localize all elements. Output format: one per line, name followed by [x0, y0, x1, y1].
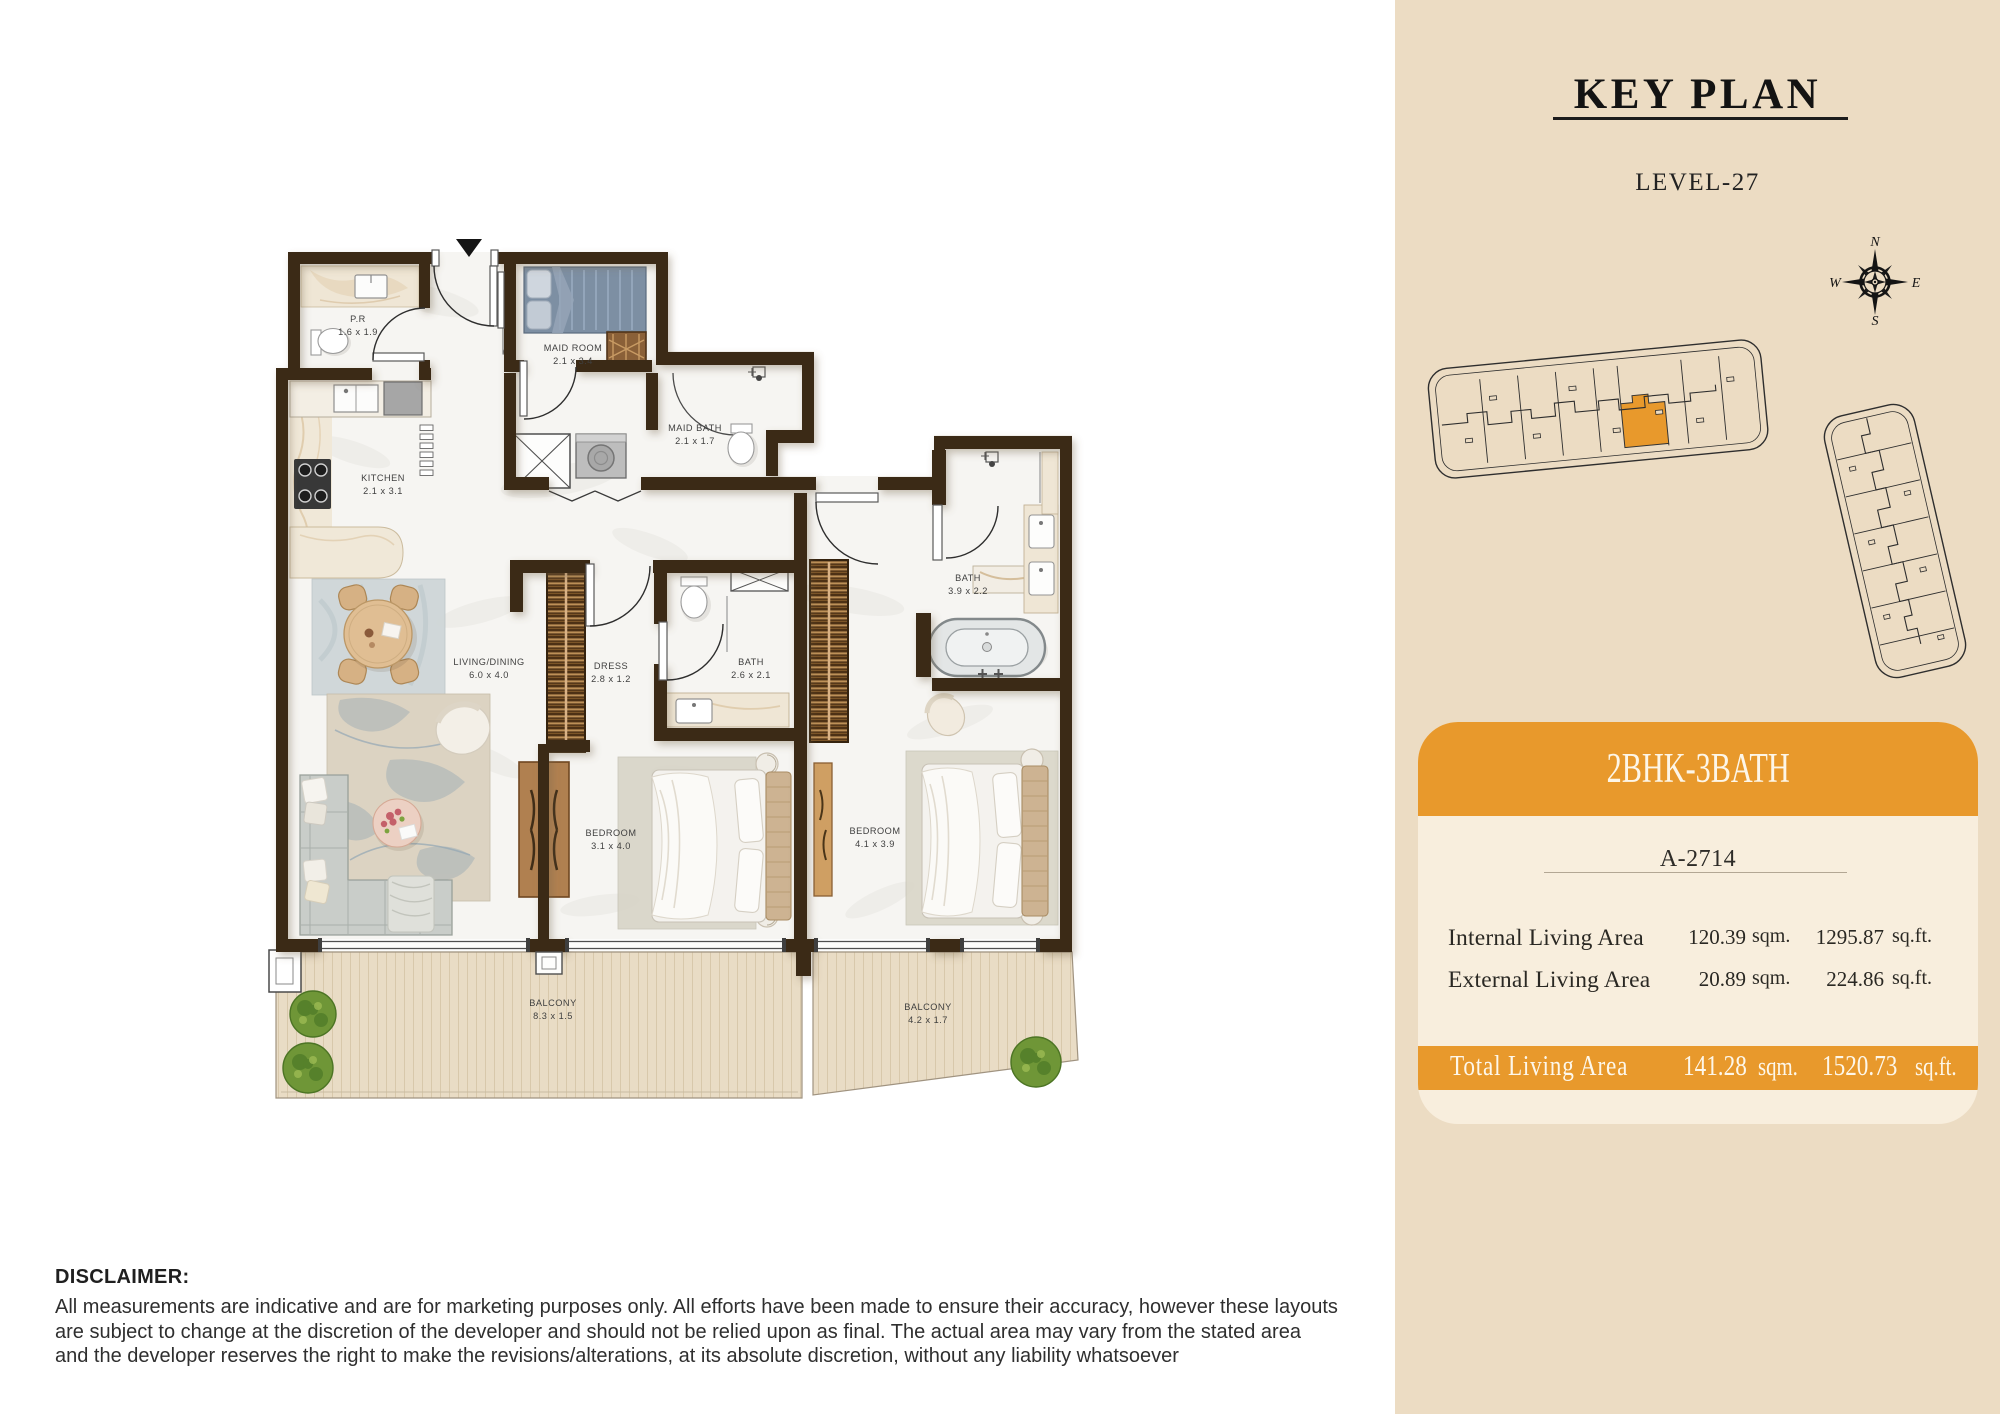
svg-text:2.1 x 1.7: 2.1 x 1.7 [675, 436, 715, 446]
svg-text:2.1 x 3.1: 2.1 x 3.1 [363, 486, 403, 496]
svg-text:BATH: BATH [955, 573, 981, 583]
svg-text:LIVING/DINING: LIVING/DINING [453, 657, 524, 667]
svg-text:3.1 x 4.0: 3.1 x 4.0 [591, 841, 631, 851]
svg-text:MAID ROOM: MAID ROOM [544, 343, 603, 353]
svg-text:BEDROOM: BEDROOM [586, 828, 637, 838]
svg-text:S: S [1872, 314, 1879, 327]
svg-text:2.8 x 1.2: 2.8 x 1.2 [591, 674, 631, 684]
svg-text:DRESS: DRESS [594, 661, 628, 671]
svg-text:8.3 x 1.5: 8.3 x 1.5 [533, 1011, 573, 1021]
svg-text:BATH: BATH [738, 657, 764, 667]
svg-text:2.1 x 3.4: 2.1 x 3.4 [553, 356, 593, 366]
svg-text:6.0 x 4.0: 6.0 x 4.0 [469, 670, 509, 680]
svg-text:E: E [1911, 276, 1921, 291]
svg-text:MAID BATH: MAID BATH [668, 423, 722, 433]
svg-text:3.9 x 2.2: 3.9 x 2.2 [948, 586, 988, 596]
svg-text:N: N [1869, 235, 1880, 250]
svg-text:BALCONY: BALCONY [529, 998, 576, 1008]
svg-text:1.6 x 1.9: 1.6 x 1.9 [338, 327, 378, 337]
svg-text:4.2 x 1.7: 4.2 x 1.7 [908, 1015, 948, 1025]
svg-text:2.6 x 2.1: 2.6 x 2.1 [731, 670, 771, 680]
svg-text:W: W [1829, 276, 1842, 291]
svg-text:4.1 x 3.9: 4.1 x 3.9 [855, 839, 895, 849]
svg-text:KITCHEN: KITCHEN [361, 473, 405, 483]
svg-text:BALCONY: BALCONY [904, 1002, 951, 1012]
svg-text:P.R: P.R [350, 314, 366, 324]
svg-text:BEDROOM: BEDROOM [850, 826, 901, 836]
